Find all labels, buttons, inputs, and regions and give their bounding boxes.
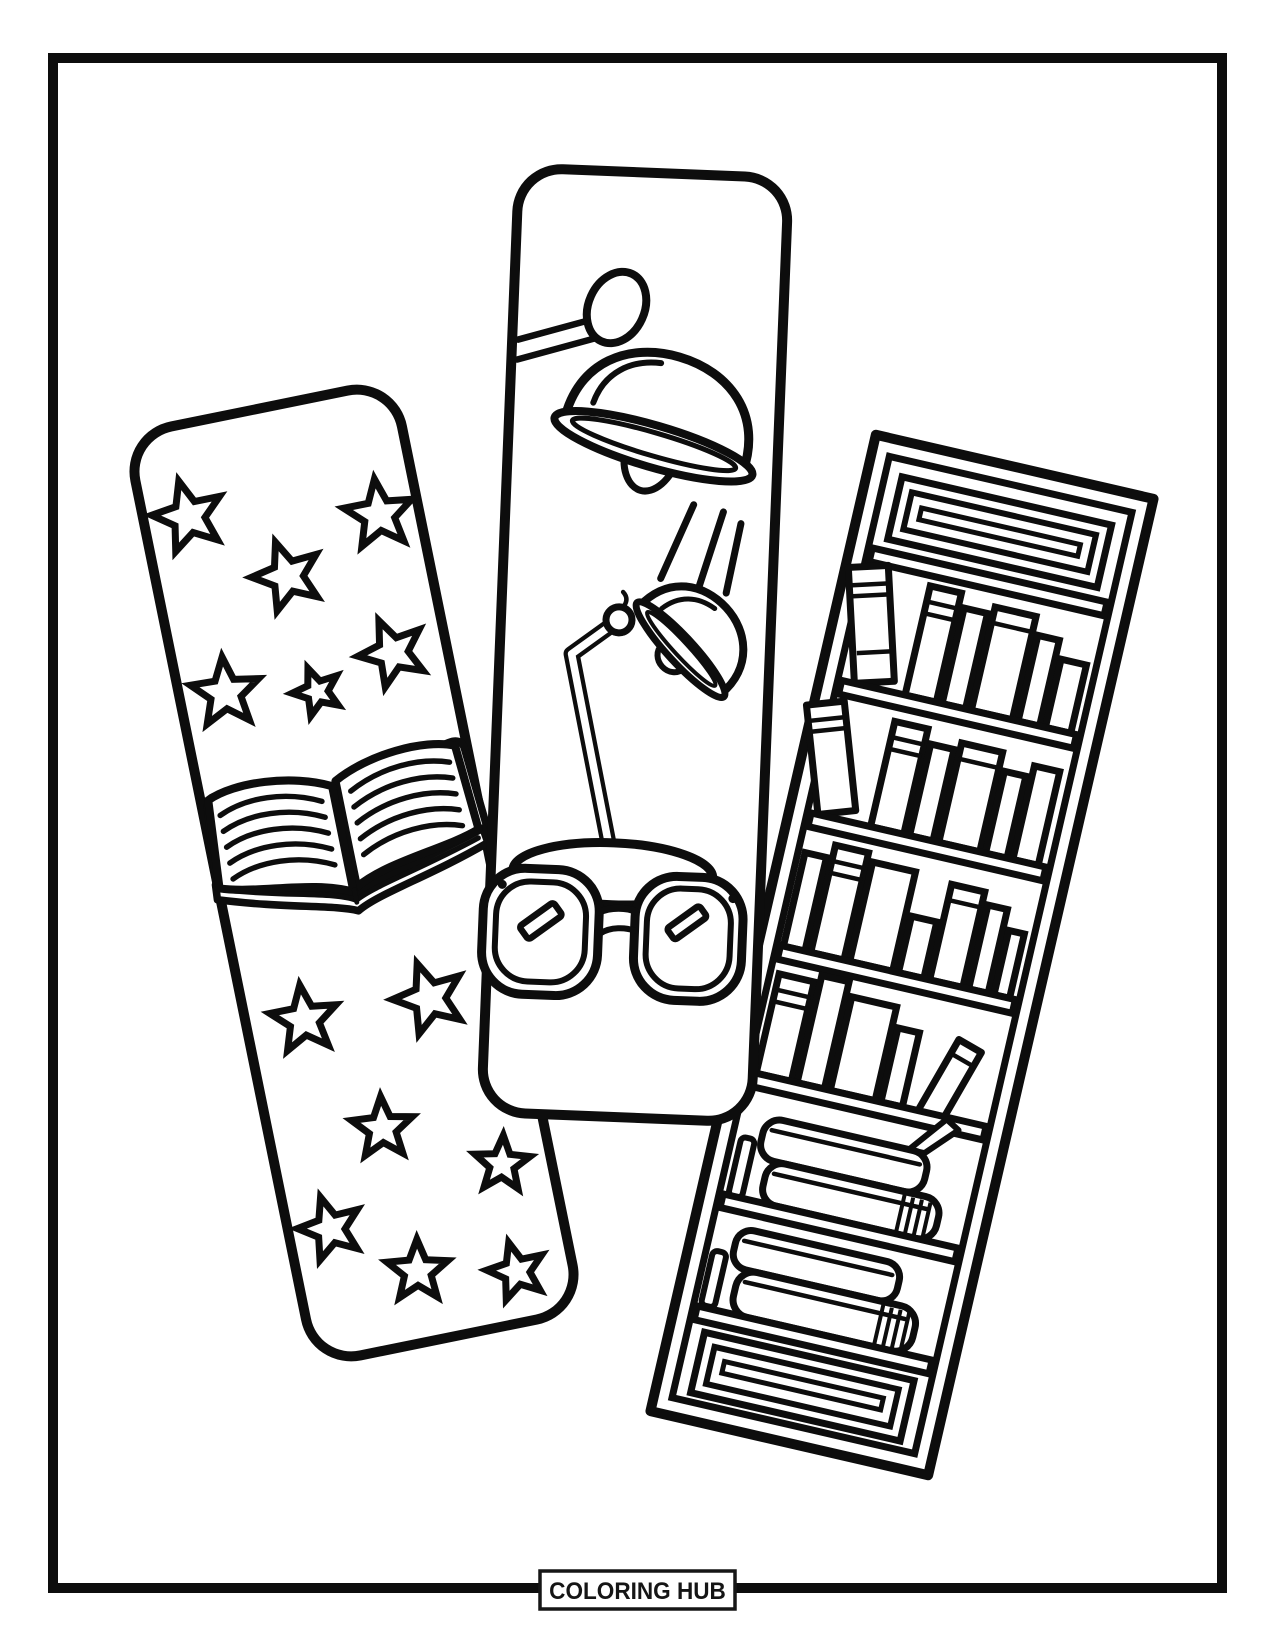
coloring-page: COLORING HUB: [0, 0, 1275, 1650]
bookmark-lamps-and-glasses: [475, 167, 789, 1122]
coloring-page-canvas: COLORING HUB: [0, 0, 1275, 1650]
desk-lamp-hinge: [605, 606, 632, 633]
footer-brand-label: COLORING HUB: [549, 1577, 726, 1604]
